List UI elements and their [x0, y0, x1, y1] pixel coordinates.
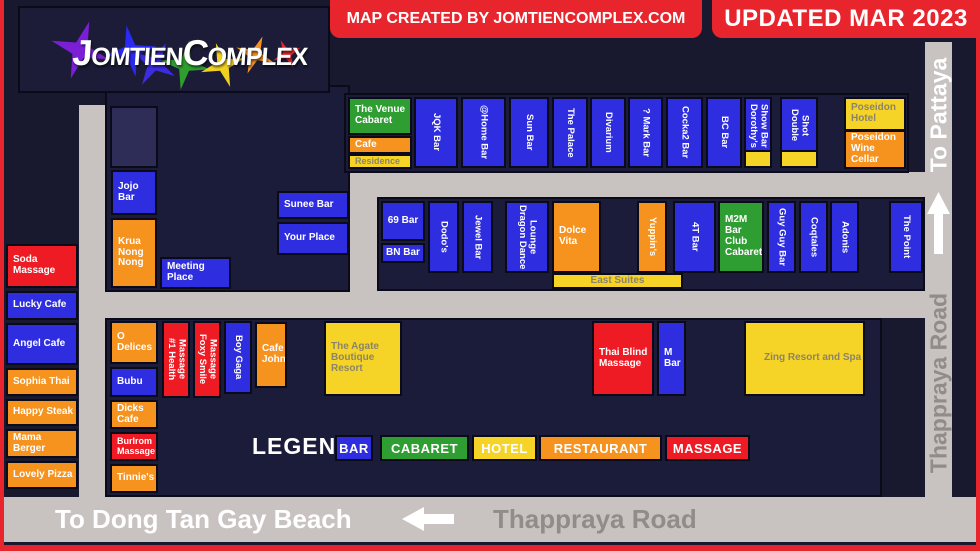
legend-label: MASSAGE — [673, 441, 742, 456]
venue-label: Jewel Bar — [472, 215, 482, 259]
venue-label: Meeting Place — [167, 262, 229, 284]
venue-label: Coqtales — [808, 217, 818, 257]
venue-sun-bar: Sun Bar — [509, 97, 549, 168]
venue-label: Divarium — [603, 112, 613, 153]
venue-boy-gaga: Boy Gaga — [224, 321, 252, 394]
venue-label: Mama Berger — [13, 433, 76, 455]
venue-your-place: Your Place — [277, 222, 349, 255]
venue-east-suites: East Suites — [552, 273, 683, 289]
venue-label: Krua Nong Nong — [118, 237, 155, 269]
venue-dolce-vita: Dolce Vita — [552, 201, 601, 273]
venue-cafe: Cafe — [348, 136, 412, 154]
venue-tinnies: Tinnie's — [110, 464, 158, 493]
logo: JomtienComplex — [49, 32, 332, 74]
venue-label: The Venue Cabaret — [355, 105, 410, 127]
venue-happy-steak: Happy Steak — [6, 399, 78, 426]
venue-angel-cafe: Angel Cafe — [6, 323, 78, 365]
venue-mama-berger: Mama Berger — [6, 429, 78, 458]
venue-the-point: The Point — [889, 201, 923, 273]
venue-label: Your Place — [284, 233, 335, 244]
venue-cocka2-bar: Cocka2 Bar — [666, 97, 703, 168]
venue-foxy-smile-massage: Foxy Smile Massage — [193, 321, 221, 398]
left-arrow-icon — [402, 507, 454, 531]
venue-m-bar: M Bar — [657, 321, 686, 396]
venue-coqtales: Coqtales — [799, 201, 828, 273]
venue-cafe-john: Cafe John — [255, 322, 287, 388]
venue-label: The Agate Boutique Resort — [331, 342, 400, 374]
left-road — [79, 105, 107, 541]
legend-label: CABARET — [391, 441, 458, 456]
venue-bc-bar: BC Bar — [706, 97, 742, 168]
venue-label: Happy Steak — [13, 407, 73, 418]
venue-label: Bubu — [117, 377, 143, 388]
venue-lucky-cafe: Lucky Cafe — [6, 291, 78, 320]
venue-label: Dodo's — [438, 221, 448, 253]
map-credit-banner: MAP CREATED BY JOMTIENCOMPLEX.COM — [330, 0, 702, 38]
venue-label: East Suites — [591, 276, 645, 287]
venue-yuppins: Yuppin's — [637, 201, 667, 273]
venue-bubu: Bubu — [110, 367, 158, 397]
venue-label: Guy Guy Bar — [776, 208, 786, 266]
venue-label: Cocka2 Bar — [679, 106, 689, 158]
legend-hotel: HOTEL — [472, 435, 537, 461]
venue-label: Dicks Cafe — [117, 404, 156, 426]
venue-question-mark-bar: ? Mark Bar — [628, 97, 663, 168]
venue-soda-massage: Soda Massage — [6, 244, 78, 288]
venue-label: Yuppin's — [647, 217, 657, 256]
venue-sophia-thai: Sophia Thai — [6, 368, 78, 396]
venue-label: 69 Bar — [388, 216, 419, 227]
venue-label: Jojo Bar — [118, 182, 155, 204]
venue-label: Adonis — [839, 221, 849, 253]
venue-krua-nong-nong: Krua Nong Nong — [111, 218, 157, 288]
venue-label: Dragon Dance Lounge — [517, 203, 538, 271]
venue-label: Foxy Smile Massage — [197, 323, 218, 396]
venue-label: Sun Bar — [524, 114, 534, 150]
venue-bn-bar: BN Bar — [381, 243, 425, 263]
venue-label: BC Bar — [719, 116, 729, 148]
venue-label: Poseidon Wine Cellar — [851, 133, 904, 165]
bottom-thappraya-road-label: Thappraya Road — [493, 504, 697, 535]
venue-thai-blind-massage: Thai Blind Massage — [592, 321, 654, 396]
venue-label: Zing Resort and Spa — [764, 353, 861, 364]
venue-m2m-bar-club-cabaret: M2M Bar Club Cabaret — [718, 201, 764, 273]
venue-sunee-bar: Sunee Bar — [277, 191, 349, 219]
updated-banner: UPDATED MAR 2023 — [712, 0, 980, 38]
venue-label: ? Mark Bar — [640, 108, 650, 157]
venue-the-venue-cabaret: The Venue Cabaret — [348, 97, 412, 135]
to-pattaya-label: To Pattaya — [926, 58, 953, 173]
venue-poseidon-hotel: Poseidon Hotel — [844, 97, 906, 131]
venue-label: Thai Blind Massage — [599, 348, 652, 370]
venue-jqk-bar: JQK Bar — [414, 97, 458, 168]
venue-dragon-dance-lounge: Dragon Dance Lounge — [505, 201, 549, 273]
venue-the-palace: The Palace — [552, 97, 588, 168]
venue-zing-resort-and-spa: Zing Resort and Spa — [744, 321, 865, 396]
legend-label: BAR — [339, 441, 369, 456]
map-poster: Soda Massage Lucky Cafe Angel Cafe Sophi… — [0, 0, 980, 551]
venue-label: Boy Gaga — [233, 335, 243, 379]
venue-label: Burlrom Massage — [117, 437, 156, 456]
logo-panel: JomtienComplex — [18, 6, 330, 93]
venue-label: @Home Bar — [478, 105, 488, 159]
venue-label: Lucky Cafe — [13, 300, 66, 311]
venue-lovely-pizza: Lovely Pizza — [6, 461, 78, 489]
hotel-strip — [782, 150, 816, 166]
venue-4t-bar: 4T Bar — [673, 201, 716, 273]
venue-label: Tinnie's — [117, 473, 154, 484]
venue-dodos: Dodo's — [428, 201, 459, 273]
venue-1-health-massage: #1 Health Massage — [162, 321, 190, 398]
legend-massage: MASSAGE — [665, 435, 750, 461]
venue-label: Lovely Pizza — [13, 470, 72, 481]
venue-residence: Residence — [348, 154, 412, 169]
hotel-strip — [746, 150, 770, 166]
legend-restaurant: RESTAURANT — [539, 435, 662, 461]
venue-the-agate-boutique-resort: The Agate Boutique Resort — [324, 321, 402, 396]
venue-label: Cafe John — [262, 344, 286, 366]
venue-69-bar: 69 Bar — [381, 201, 425, 241]
venue-meeting-place: Meeting Place — [160, 257, 231, 289]
venue-label: Residence — [355, 157, 400, 167]
venue-label: BN Bar — [386, 248, 420, 259]
right-thappraya-road-label: Thappraya Road — [926, 293, 953, 473]
venue-label: M Bar — [664, 348, 684, 370]
venue-jojo-bar: Jojo Bar — [111, 170, 157, 215]
venue-jewel-bar: Jewel Bar — [462, 201, 493, 273]
top-road — [348, 172, 952, 199]
venue-label: Soda Massage — [13, 255, 76, 277]
venue-divarium: Divarium — [590, 97, 626, 168]
logo-word: Complex — [181, 32, 309, 74]
venue-label: Sophia Thai — [13, 377, 70, 388]
venue-label: O Delices — [117, 332, 156, 354]
venue-label: Poseidon Hotel — [851, 103, 904, 125]
venue-o-delices: O Delices — [110, 321, 158, 364]
venue-label: #1 Health Massage — [166, 323, 187, 396]
block-unnamed — [110, 106, 158, 168]
venue-label: JQK Bar — [431, 113, 441, 151]
venue-label: The Point — [901, 215, 911, 258]
venue-at-home-bar: @Home Bar — [461, 97, 506, 168]
venue-double-shot: Double Shot — [780, 97, 818, 168]
venue-label: Angel Cafe — [13, 339, 65, 350]
to-dong-tan-gay-beach-label: To Dong Tan Gay Beach — [55, 504, 352, 535]
venue-label: Cafe — [355, 140, 377, 151]
venue-poseidon-wine-cellar: Poseidon Wine Cellar — [844, 130, 906, 169]
logo-word: Jomtien — [71, 32, 184, 74]
venue-dorothys-show-bar: Dorothy's Show Bar — [744, 97, 772, 168]
venue-burlrom-massage: Burlrom Massage — [110, 432, 158, 461]
legend-label: HOTEL — [481, 441, 528, 456]
venue-guy-guy-bar: Guy Guy Bar — [767, 201, 796, 273]
venue-label: M2M Bar Club Cabaret — [725, 215, 762, 258]
venue-adonis: Adonis — [830, 201, 859, 273]
up-arrow-icon — [927, 192, 950, 254]
venue-label: Dolce Vita — [559, 226, 599, 248]
venue-dicks-cafe: Dicks Cafe — [110, 400, 158, 429]
legend-bar: BAR — [335, 435, 373, 461]
venue-label: The Palace — [565, 108, 575, 158]
middle-road — [107, 290, 952, 318]
venue-label: Sunee Bar — [284, 200, 333, 211]
legend-label: RESTAURANT — [554, 441, 648, 456]
legend-cabaret: CABARET — [380, 435, 469, 461]
venue-label: 4T Bar — [689, 222, 699, 252]
